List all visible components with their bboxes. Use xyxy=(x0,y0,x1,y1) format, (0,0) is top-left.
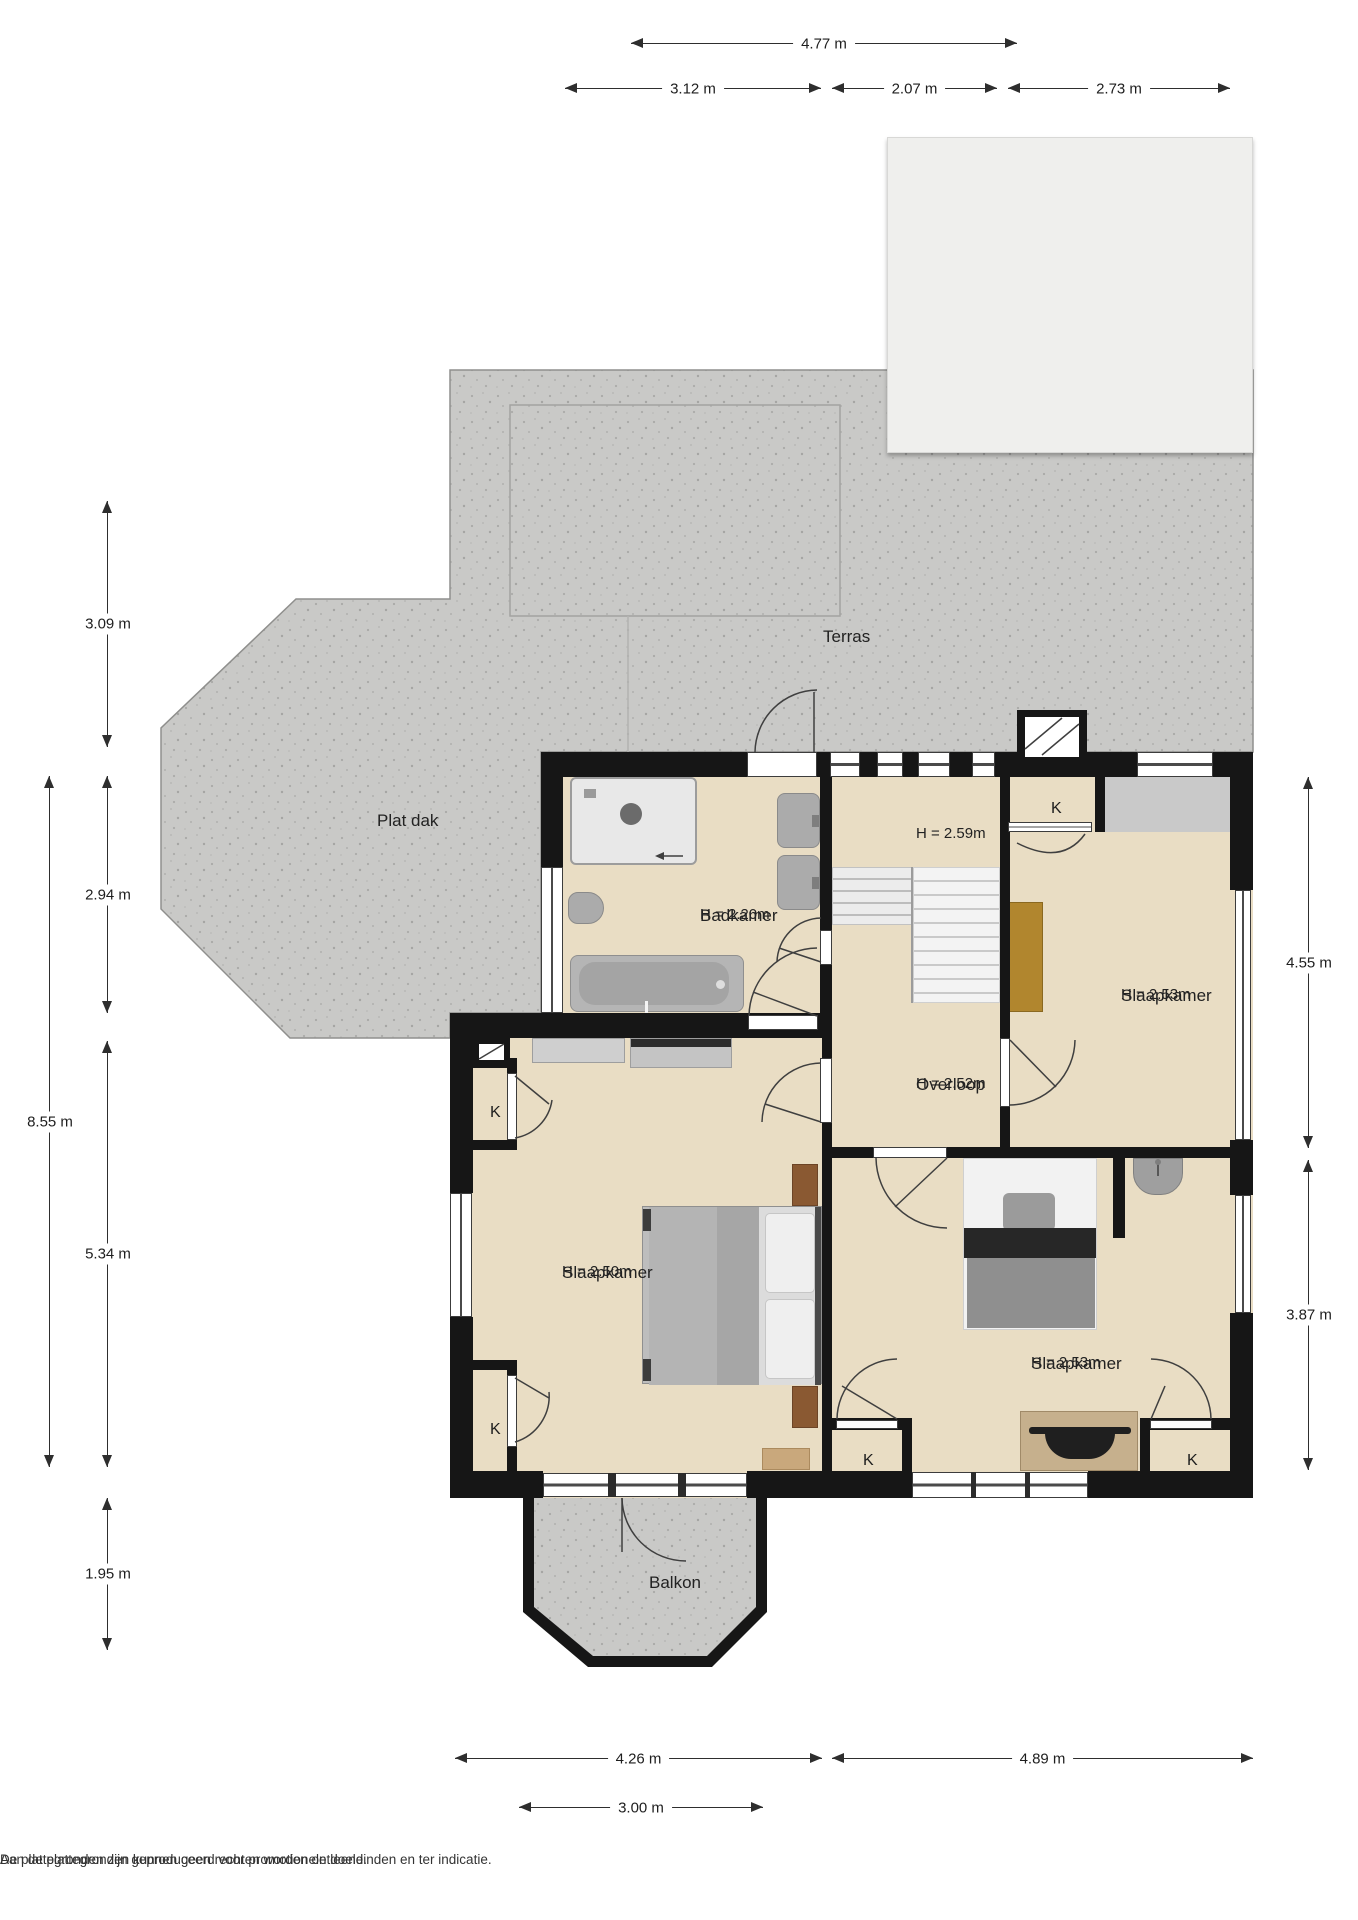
floorplan-canvas: Terras Plat dak BadkamerH = 2.20m H = 2.… xyxy=(0,0,1358,1920)
dimension-right-455: 4.55 m xyxy=(1308,777,1309,1148)
dimension-top-273: 2.73 m xyxy=(1008,88,1230,89)
dimension-top-312: 3.12 m xyxy=(565,88,821,89)
dimension-bottom-300: 3.00 m xyxy=(519,1807,763,1808)
door-arc-layer xyxy=(0,0,1358,1920)
dimension-top-207: 2.07 m xyxy=(832,88,997,89)
dimension-left-534: 5.34 m xyxy=(107,1041,108,1467)
dimension-left-195: 1.95 m xyxy=(107,1498,108,1650)
dimension-bottom-489: 4.89 m xyxy=(832,1758,1253,1759)
dimension-left-294: 2.94 m xyxy=(107,776,108,1013)
dimension-top-477: 4.77 m xyxy=(631,43,1017,44)
dimension-right-387: 3.87 m xyxy=(1308,1160,1309,1470)
dimension-left-309: 3.09 m xyxy=(107,501,108,747)
dimension-left-855: 8.55 m xyxy=(49,776,50,1467)
dimension-bottom-426: 4.26 m xyxy=(455,1758,822,1759)
